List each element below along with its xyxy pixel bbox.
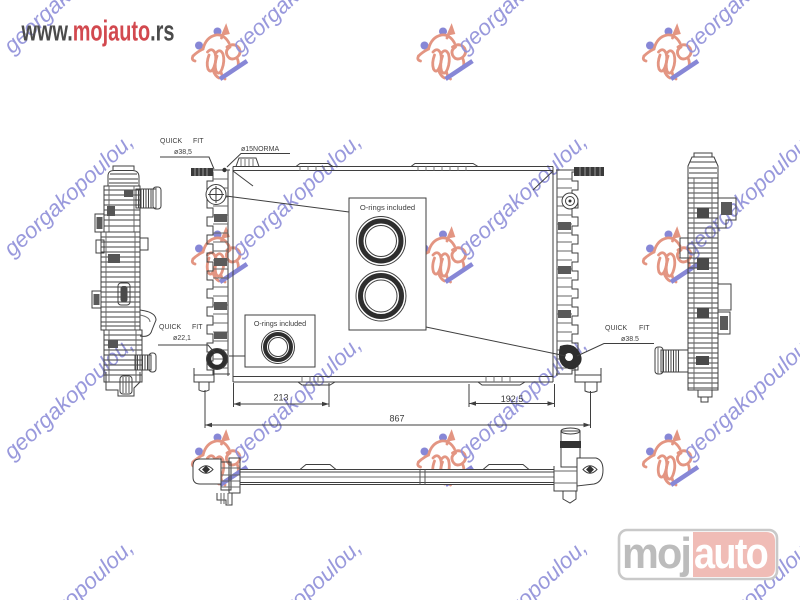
- svg-text:192.5: 192.5: [501, 394, 524, 404]
- svg-text:ø38,5: ø38,5: [174, 149, 192, 156]
- svg-text:ø22,1: ø22,1: [173, 335, 191, 342]
- svg-text:QUICK: QUICK: [159, 324, 182, 331]
- svg-text:auto: auto: [694, 529, 768, 578]
- svg-text:QUICK: QUICK: [160, 138, 183, 145]
- svg-text:O-rings included: O-rings included: [254, 319, 306, 328]
- svg-text:FIT: FIT: [192, 324, 203, 331]
- svg-text:ø38.5: ø38.5: [621, 336, 639, 343]
- svg-text:FIT: FIT: [639, 325, 650, 332]
- svg-text:moj: moj: [622, 529, 690, 578]
- svg-text:213: 213: [273, 393, 288, 403]
- svg-text:867: 867: [389, 414, 404, 424]
- svg-text:FIT: FIT: [193, 138, 204, 145]
- svg-text:www.mojauto.rs: www.mojauto.rs: [21, 16, 175, 48]
- svg-text:QUICK: QUICK: [605, 325, 628, 332]
- svg-text:O-rings included: O-rings included: [360, 203, 415, 212]
- svg-text:ø15NORMA: ø15NORMA: [241, 146, 279, 153]
